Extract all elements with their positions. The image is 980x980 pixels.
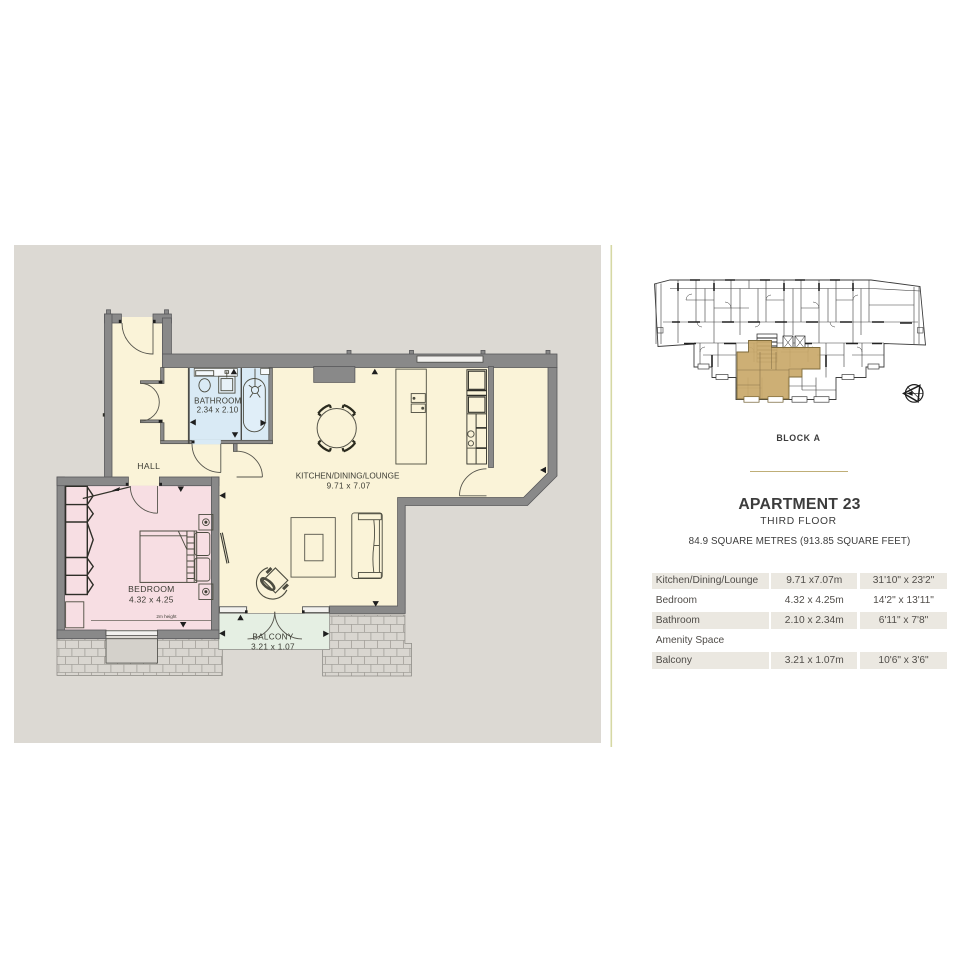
svg-text:2m height: 2m height (156, 614, 177, 619)
svg-text:2.34 x 2.10: 2.34 x 2.10 (197, 406, 239, 415)
svg-text:BATHROOM: BATHROOM (194, 397, 241, 406)
svg-text:BEDROOM: BEDROOM (128, 584, 175, 594)
svg-text:KITCHEN/DINING/LOUNGE: KITCHEN/DINING/LOUNGE (296, 471, 400, 480)
svg-text:BALCONY: BALCONY (252, 632, 293, 641)
svg-text:3.21 x 1.07: 3.21 x 1.07 (251, 642, 295, 651)
svg-text:HALL: HALL (137, 461, 160, 471)
svg-text:4.32 x 4.25: 4.32 x 4.25 (129, 594, 174, 604)
svg-text:9.71 x 7.07: 9.71 x 7.07 (327, 481, 371, 490)
